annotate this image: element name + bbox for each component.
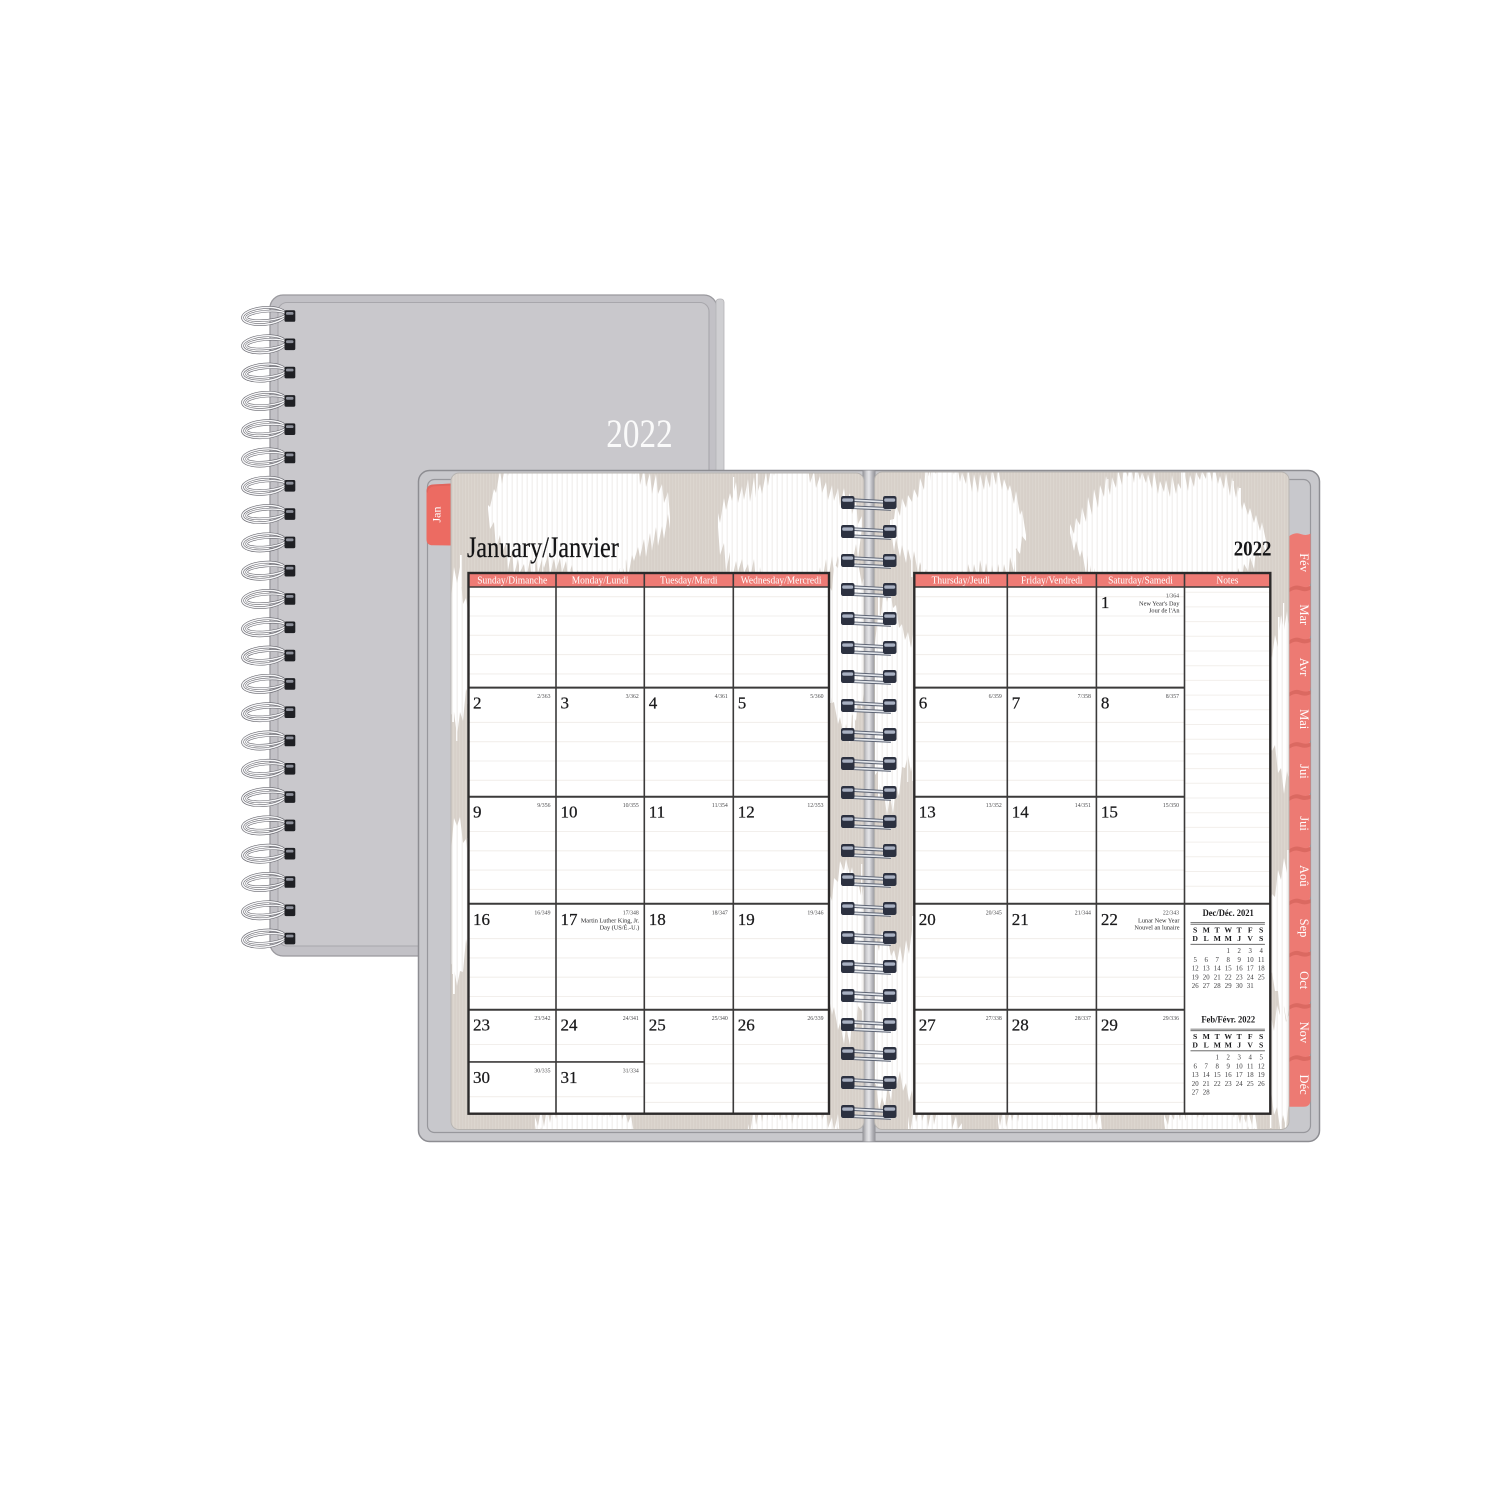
svg-text:10: 10 <box>1236 1063 1243 1070</box>
svg-text:21: 21 <box>1203 1081 1210 1088</box>
svg-text:17: 17 <box>561 910 579 929</box>
svg-text:11/354: 11/354 <box>712 803 728 809</box>
svg-text:Fév: Fév <box>1297 553 1311 573</box>
svg-text:8: 8 <box>1215 1063 1219 1070</box>
svg-text:24: 24 <box>1247 974 1254 981</box>
svg-text:19/346: 19/346 <box>807 910 823 916</box>
svg-text:22: 22 <box>1225 974 1232 981</box>
svg-text:3: 3 <box>1248 948 1252 955</box>
svg-text:20/345: 20/345 <box>986 910 1002 916</box>
svg-text:23/342: 23/342 <box>534 1016 550 1022</box>
svg-text:23: 23 <box>1236 974 1243 981</box>
svg-text:9/356: 9/356 <box>537 803 550 809</box>
svg-text:29: 29 <box>1225 983 1232 990</box>
svg-text:11: 11 <box>1247 1063 1254 1070</box>
svg-text:6/359: 6/359 <box>989 694 1002 700</box>
svg-text:4: 4 <box>1259 948 1263 955</box>
svg-text:7: 7 <box>1204 1063 1208 1070</box>
svg-text:26: 26 <box>1258 1081 1265 1088</box>
svg-text:22: 22 <box>1101 910 1118 929</box>
svg-text:Nouvel an lunaire: Nouvel an lunaire <box>1134 925 1179 932</box>
svg-text:S: S <box>1259 1041 1263 1050</box>
svg-text:15/350: 15/350 <box>1163 803 1179 809</box>
svg-text:5: 5 <box>1259 1055 1263 1062</box>
svg-text:4/361: 4/361 <box>715 694 728 700</box>
svg-text:30: 30 <box>473 1068 490 1087</box>
svg-text:14/351: 14/351 <box>1075 803 1091 809</box>
svg-text:31: 31 <box>1247 983 1254 990</box>
svg-text:28: 28 <box>1012 1016 1029 1035</box>
svg-text:Jui: Jui <box>1297 764 1311 779</box>
svg-text:23: 23 <box>473 1016 490 1035</box>
svg-text:1: 1 <box>1101 593 1110 612</box>
svg-text:17/348: 17/348 <box>623 910 639 916</box>
svg-text:16: 16 <box>473 910 490 929</box>
svg-text:L: L <box>1204 934 1209 943</box>
svg-text:10: 10 <box>561 803 578 822</box>
svg-text:25: 25 <box>1258 974 1265 981</box>
svg-text:Avr: Avr <box>1297 658 1311 677</box>
svg-text:22/343: 22/343 <box>1163 910 1179 916</box>
svg-text:6: 6 <box>1204 957 1208 964</box>
svg-text:5/360: 5/360 <box>810 694 823 700</box>
svg-text:L: L <box>1204 1041 1209 1050</box>
svg-text:M: M <box>1214 934 1222 943</box>
svg-text:20: 20 <box>919 910 936 929</box>
svg-text:26: 26 <box>1192 983 1199 990</box>
svg-text:3/362: 3/362 <box>626 694 639 700</box>
svg-text:12/353: 12/353 <box>807 803 823 809</box>
svg-text:9: 9 <box>1237 957 1241 964</box>
svg-text:21: 21 <box>1214 974 1221 981</box>
svg-text:14: 14 <box>1203 1072 1210 1079</box>
svg-text:19: 19 <box>738 910 755 929</box>
svg-text:M: M <box>1214 1041 1222 1050</box>
svg-text:20: 20 <box>1203 974 1210 981</box>
svg-text:January/Janvier: January/Janvier <box>467 531 619 564</box>
svg-text:Nov: Nov <box>1297 1022 1311 1044</box>
svg-text:13: 13 <box>1203 966 1210 973</box>
svg-text:2022: 2022 <box>606 411 672 456</box>
svg-text:S: S <box>1259 934 1263 943</box>
svg-text:4: 4 <box>1248 1055 1252 1062</box>
svg-text:Sunday/Dimanche: Sunday/Dimanche <box>477 575 548 586</box>
svg-text:6: 6 <box>1193 1063 1197 1070</box>
svg-text:V: V <box>1247 934 1253 943</box>
svg-text:27: 27 <box>919 1016 937 1035</box>
svg-text:18: 18 <box>649 910 666 929</box>
svg-text:1/364: 1/364 <box>1166 594 1179 600</box>
svg-text:25/340: 25/340 <box>712 1016 728 1022</box>
svg-text:7: 7 <box>1215 957 1219 964</box>
svg-text:Monday/Lundi: Monday/Lundi <box>572 575 629 586</box>
svg-text:Wednesday/Mercredi: Wednesday/Mercredi <box>741 575 822 586</box>
svg-text:12: 12 <box>738 803 755 822</box>
svg-text:Dec/Déc. 2021: Dec/Déc. 2021 <box>1203 908 1254 918</box>
svg-text:11: 11 <box>649 803 665 822</box>
svg-text:18: 18 <box>1258 966 1265 973</box>
svg-text:Thursday/Jeudi: Thursday/Jeudi <box>932 575 991 586</box>
svg-text:24: 24 <box>1236 1081 1243 1088</box>
svg-text:9: 9 <box>473 803 482 822</box>
svg-text:2: 2 <box>473 694 482 713</box>
svg-text:13/352: 13/352 <box>986 803 1002 809</box>
svg-text:20: 20 <box>1192 1081 1199 1088</box>
svg-text:10/355: 10/355 <box>623 803 639 809</box>
svg-text:M: M <box>1225 1041 1233 1050</box>
svg-text:17: 17 <box>1236 1072 1243 1079</box>
svg-text:13: 13 <box>1192 1072 1199 1079</box>
svg-text:28/337: 28/337 <box>1075 1016 1091 1022</box>
svg-text:12: 12 <box>1192 966 1199 973</box>
svg-text:M: M <box>1225 934 1233 943</box>
svg-text:Saturday/Samedi: Saturday/Samedi <box>1108 575 1173 586</box>
svg-text:Oct: Oct <box>1297 971 1311 990</box>
svg-text:7/358: 7/358 <box>1078 694 1091 700</box>
svg-text:15: 15 <box>1101 803 1118 822</box>
svg-text:Day (US/É.-U.): Day (US/É.-U.) <box>600 924 640 932</box>
svg-text:19: 19 <box>1192 974 1199 981</box>
svg-text:Lunar New Year: Lunar New Year <box>1138 917 1180 924</box>
svg-text:10: 10 <box>1247 957 1254 964</box>
svg-text:21: 21 <box>1012 910 1029 929</box>
svg-text:17: 17 <box>1247 966 1254 973</box>
svg-text:8: 8 <box>1101 694 1110 713</box>
svg-text:4: 4 <box>649 694 658 713</box>
svg-text:8/357: 8/357 <box>1166 694 1179 700</box>
svg-text:Jour de l'An: Jour de l'An <box>1149 608 1180 615</box>
svg-text:14: 14 <box>1214 966 1221 973</box>
svg-text:18: 18 <box>1247 1072 1254 1079</box>
svg-text:30/335: 30/335 <box>534 1068 550 1074</box>
svg-text:27: 27 <box>1192 1090 1199 1097</box>
svg-text:Jui: Jui <box>1297 816 1311 831</box>
svg-text:2: 2 <box>1237 948 1241 955</box>
svg-text:Friday/Vendredi: Friday/Vendredi <box>1021 575 1083 586</box>
svg-text:6: 6 <box>919 694 928 713</box>
svg-text:27/338: 27/338 <box>986 1016 1002 1022</box>
svg-text:11: 11 <box>1258 957 1265 964</box>
svg-text:8: 8 <box>1226 957 1230 964</box>
svg-text:16: 16 <box>1236 966 1243 973</box>
svg-text:Sep: Sep <box>1297 919 1311 938</box>
svg-text:23: 23 <box>1225 1081 1232 1088</box>
svg-text:V: V <box>1247 1041 1253 1050</box>
svg-text:D: D <box>1192 934 1198 943</box>
svg-text:18/347: 18/347 <box>712 910 728 916</box>
svg-text:21/344: 21/344 <box>1075 910 1091 916</box>
svg-text:26: 26 <box>738 1016 755 1035</box>
svg-text:5: 5 <box>1193 957 1197 964</box>
svg-text:13: 13 <box>919 803 936 822</box>
svg-text:15: 15 <box>1225 966 1232 973</box>
svg-text:Martin Luther King, Jr.: Martin Luther King, Jr. <box>581 917 640 924</box>
svg-text:16/349: 16/349 <box>534 910 550 916</box>
svg-text:2022: 2022 <box>1234 538 1272 561</box>
svg-text:29: 29 <box>1101 1016 1118 1035</box>
svg-text:24: 24 <box>561 1016 579 1035</box>
svg-text:12: 12 <box>1258 1063 1265 1070</box>
svg-text:26/339: 26/339 <box>807 1016 823 1022</box>
svg-text:5: 5 <box>738 694 747 713</box>
svg-text:30: 30 <box>1236 983 1243 990</box>
svg-text:Mar: Mar <box>1297 604 1311 626</box>
svg-text:7: 7 <box>1012 694 1021 713</box>
svg-text:28: 28 <box>1203 1090 1210 1097</box>
svg-text:3: 3 <box>561 694 570 713</box>
svg-text:Aoû: Aoû <box>1297 865 1311 887</box>
svg-text:27: 27 <box>1203 983 1210 990</box>
svg-text:2/363: 2/363 <box>537 694 550 700</box>
svg-text:J: J <box>1237 1041 1241 1050</box>
svg-text:29/336: 29/336 <box>1163 1016 1179 1022</box>
svg-text:9: 9 <box>1226 1063 1230 1070</box>
svg-text:Mai: Mai <box>1297 709 1311 730</box>
svg-text:24/341: 24/341 <box>623 1016 639 1022</box>
svg-text:Déc: Déc <box>1297 1075 1311 1096</box>
svg-text:31/334: 31/334 <box>623 1068 639 1074</box>
svg-text:25: 25 <box>1247 1081 1254 1088</box>
svg-text:1: 1 <box>1215 1055 1218 1062</box>
svg-text:J: J <box>1237 934 1241 943</box>
svg-text:19: 19 <box>1258 1072 1265 1079</box>
svg-text:22: 22 <box>1214 1081 1221 1088</box>
svg-text:14: 14 <box>1012 803 1030 822</box>
svg-text:1: 1 <box>1226 948 1229 955</box>
svg-text:16: 16 <box>1225 1072 1232 1079</box>
svg-text:New Year's Day: New Year's Day <box>1139 601 1180 608</box>
svg-text:Tuesday/Mardi: Tuesday/Mardi <box>660 575 718 586</box>
svg-text:31: 31 <box>561 1068 578 1087</box>
svg-text:2: 2 <box>1226 1055 1230 1062</box>
svg-text:Feb/Févr. 2022: Feb/Févr. 2022 <box>1201 1014 1255 1024</box>
svg-text:28: 28 <box>1214 983 1221 990</box>
svg-text:Notes: Notes <box>1216 575 1238 586</box>
svg-text:D: D <box>1192 1041 1198 1050</box>
svg-text:Jan: Jan <box>430 507 444 523</box>
svg-text:25: 25 <box>649 1016 666 1035</box>
svg-text:15: 15 <box>1214 1072 1221 1079</box>
svg-text:3: 3 <box>1237 1055 1241 1062</box>
